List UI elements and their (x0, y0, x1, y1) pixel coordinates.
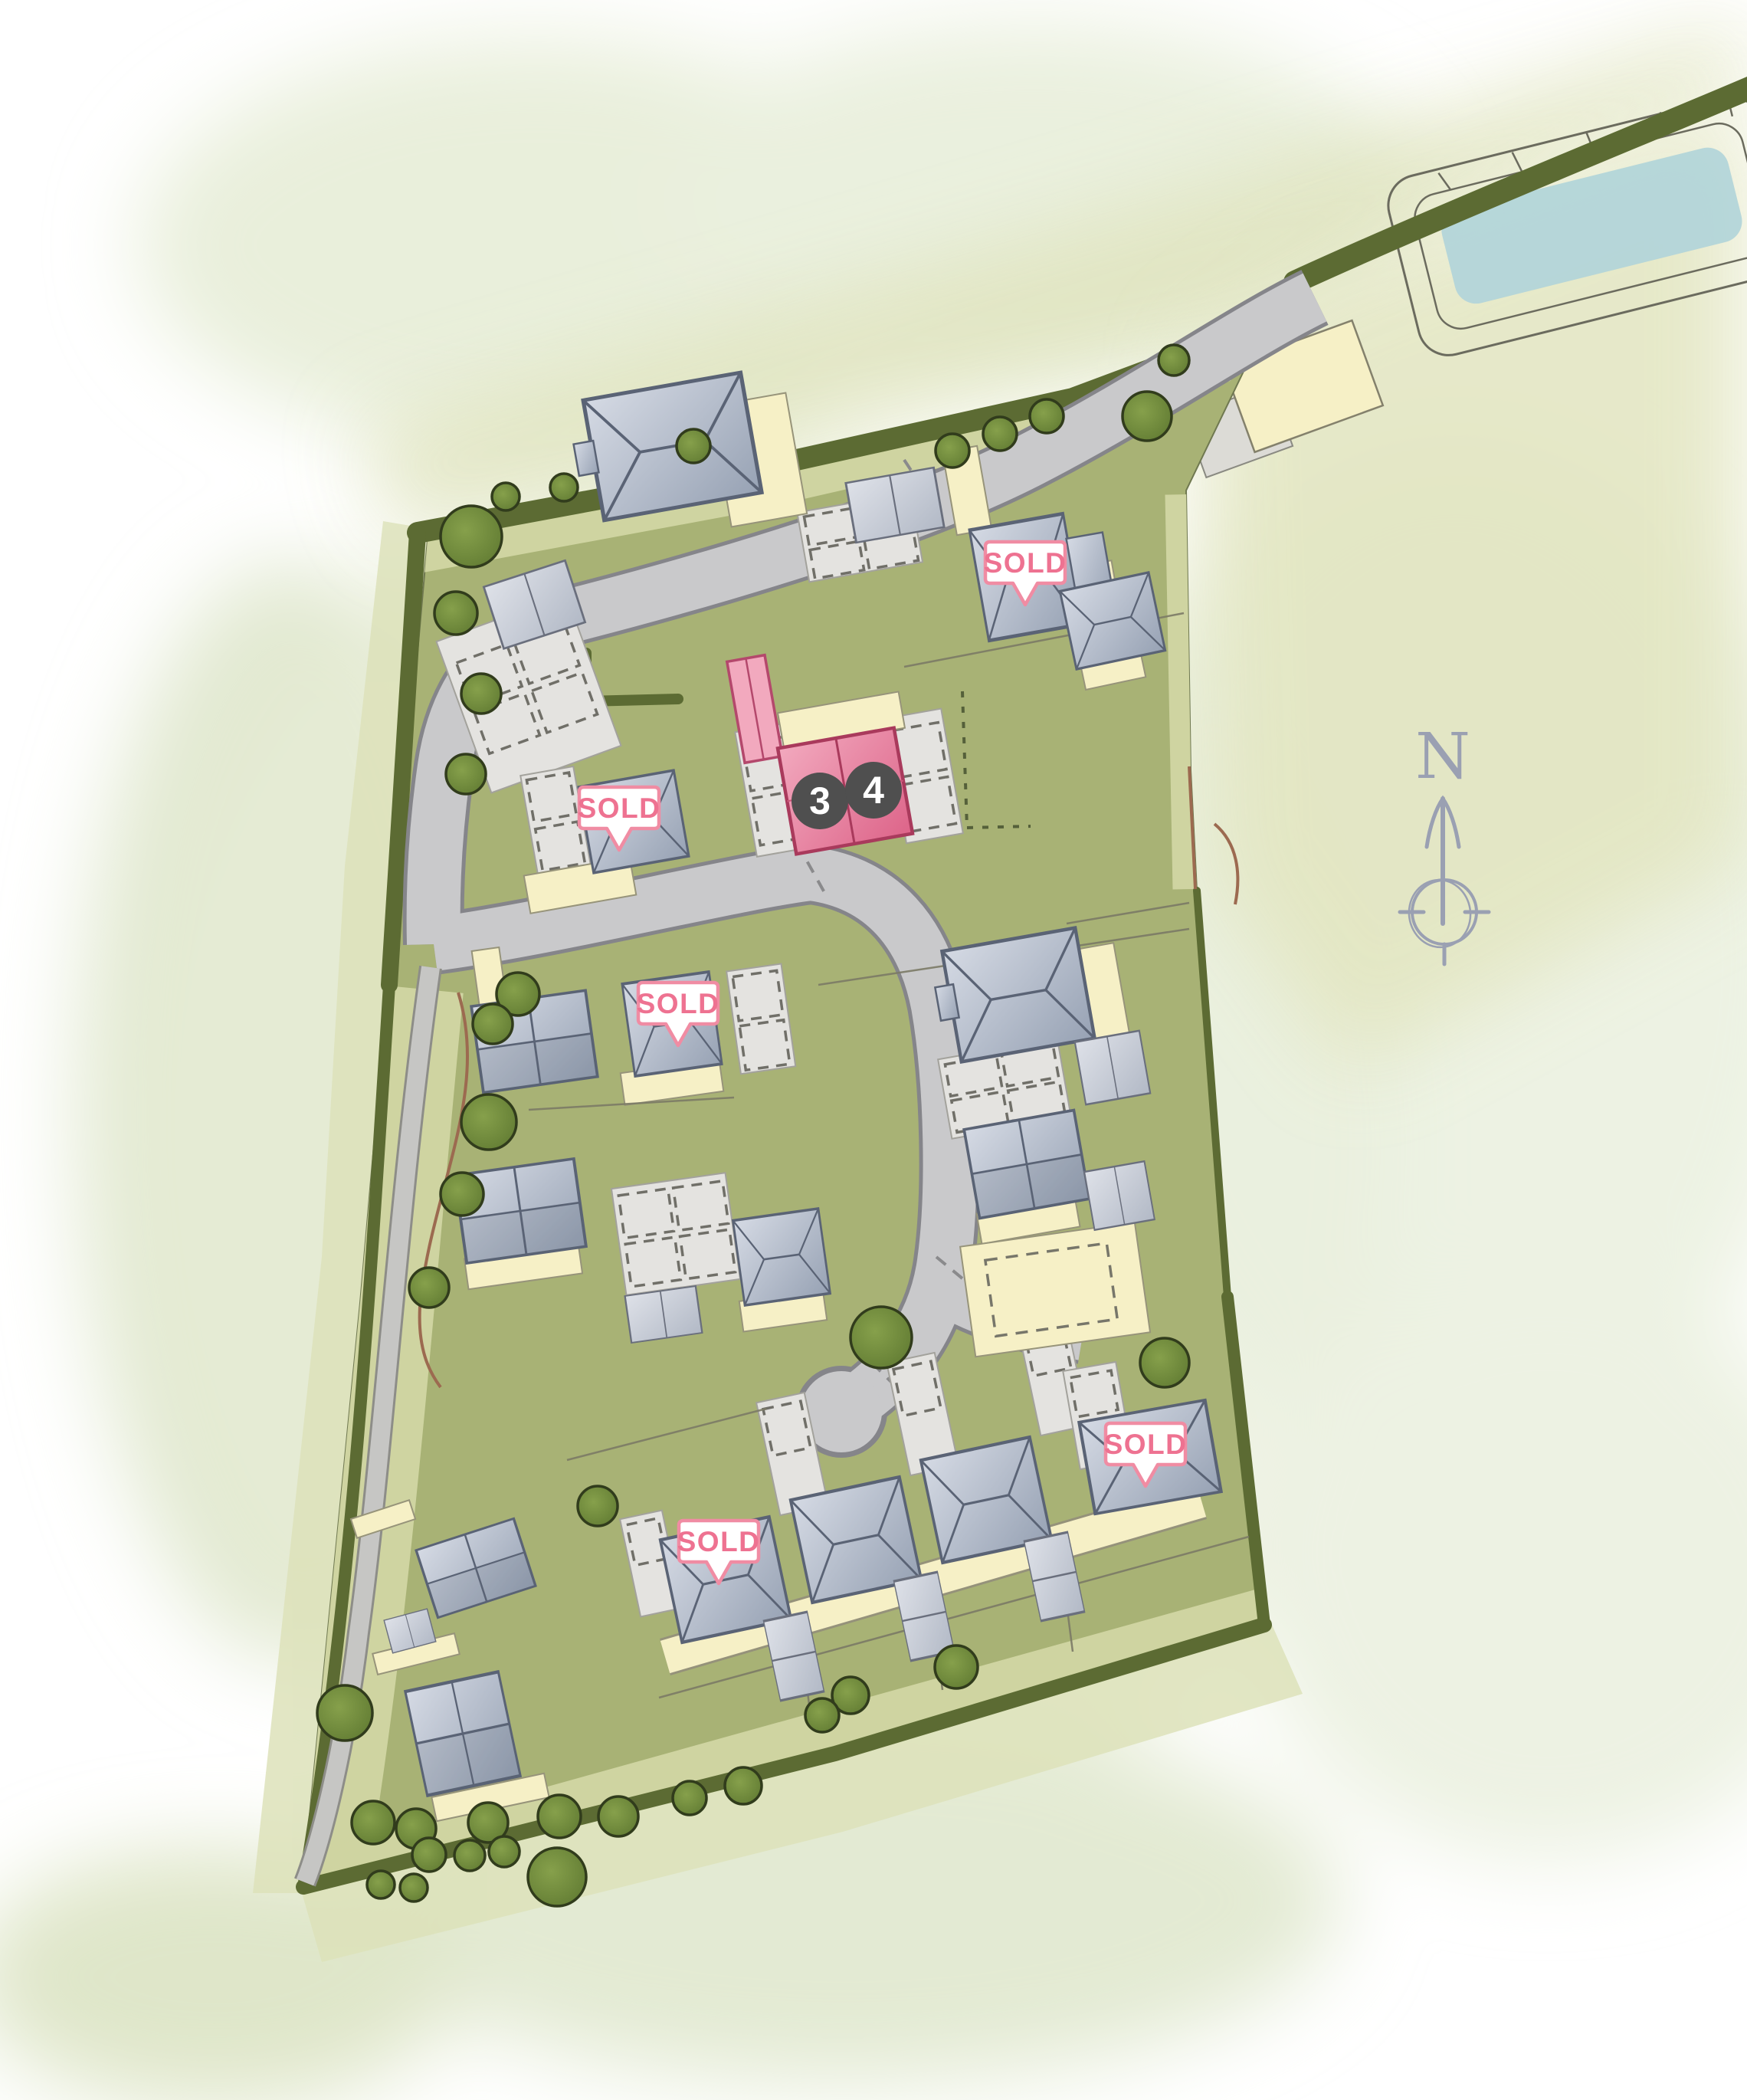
house-roof (942, 928, 1094, 1062)
tree (1123, 392, 1172, 441)
plot-3-marker[interactable]: 3 (792, 773, 848, 829)
tree (725, 1767, 762, 1804)
garage-roof (625, 1286, 703, 1343)
tree (598, 1796, 638, 1836)
house-roof (583, 372, 762, 520)
tree (1140, 1338, 1189, 1387)
tree (492, 483, 520, 510)
site-plan-canvas: 3 4 (0, 0, 1747, 2100)
plot-4-number: 4 (863, 769, 884, 812)
tree (538, 1795, 581, 1838)
tree (489, 1836, 520, 1867)
sold-badge-label: SOLD (637, 988, 720, 1019)
house-porch (574, 441, 599, 476)
tree (983, 417, 1017, 451)
garage-roof (1075, 1031, 1150, 1104)
garage-roof (1084, 1161, 1155, 1230)
site-plan-page: 3 4 (0, 0, 1747, 2100)
tree (935, 1646, 978, 1688)
visitor-court (960, 1222, 1150, 1357)
tree (461, 1094, 516, 1150)
tree (851, 1307, 912, 1368)
tree (461, 674, 501, 714)
tree (454, 1840, 485, 1871)
tree (805, 1698, 839, 1732)
tree (412, 1838, 446, 1872)
tree (352, 1801, 395, 1844)
sold-badge-label: SOLD (1104, 1429, 1188, 1460)
compass-north-label: N (1415, 720, 1470, 793)
tree (936, 434, 969, 468)
tree (446, 754, 486, 794)
tree (409, 1268, 449, 1308)
tree (400, 1874, 428, 1901)
plot-4-marker[interactable]: 4 (845, 762, 902, 819)
sold-badge-label: SOLD (578, 792, 661, 824)
tree (528, 1848, 586, 1906)
tree (673, 1781, 706, 1815)
house-roof (733, 1209, 831, 1305)
sold-badge-label: SOLD (984, 547, 1067, 579)
house-roof (1060, 573, 1165, 669)
sold-badge-label: SOLD (677, 1526, 761, 1557)
tree (367, 1871, 395, 1898)
house-roof (964, 1111, 1090, 1219)
tree (317, 1685, 372, 1741)
plot-3-number: 3 (809, 779, 831, 822)
house-roof (405, 1672, 520, 1795)
tree (1030, 399, 1064, 433)
tree (1159, 345, 1189, 376)
tree (473, 1004, 513, 1044)
tree (677, 429, 710, 463)
tree (550, 474, 578, 501)
tree (441, 506, 502, 567)
tree (578, 1486, 618, 1526)
tree (434, 592, 477, 635)
tree (441, 1173, 483, 1216)
